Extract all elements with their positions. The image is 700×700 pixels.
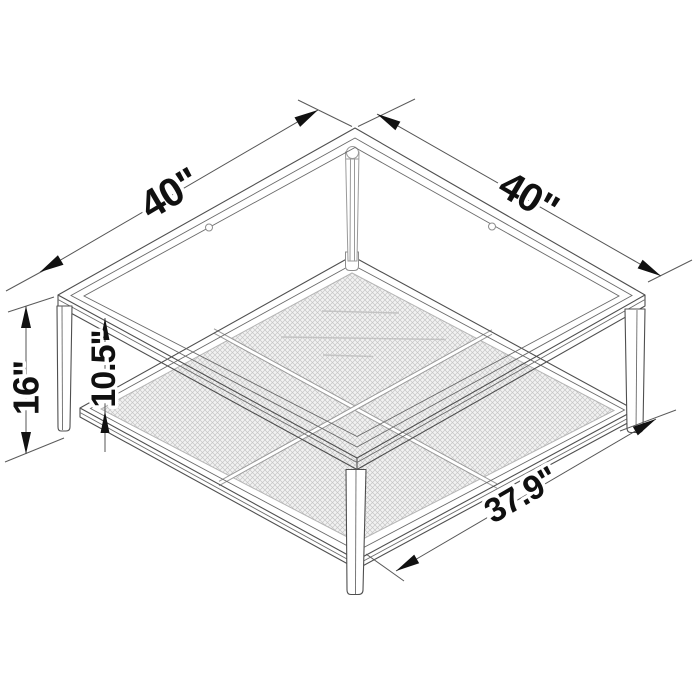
arrowhead-icon (21, 432, 31, 454)
dimension-top-right: 40" (358, 99, 692, 282)
dimension-shelf-clearance: 10.5" (85, 318, 123, 452)
dimension-diagram: 40" 40" 16" 10.5" 37.9" (0, 0, 700, 700)
dim-label-shelf-clearance: 10.5" (85, 330, 123, 407)
left-leg (57, 306, 72, 431)
dimension-height: 16" (5, 297, 64, 462)
left-leg-edge (62, 306, 63, 430)
arrowhead-icon (40, 255, 64, 272)
arrowhead-icon (21, 306, 31, 328)
dim-label-top-right: 40" (491, 163, 565, 232)
arrowhead-icon (377, 114, 400, 130)
frame-tab-icon (489, 223, 496, 230)
arrowhead-icon (396, 555, 419, 571)
frame-tab-icon (206, 224, 213, 231)
dim-label-height: 16" (6, 361, 47, 415)
front-leg-edge (356, 470, 357, 594)
dimension-top-left: 40" (6, 100, 352, 291)
right-leg (625, 309, 645, 433)
arrowhead-icon (638, 260, 661, 276)
back-leg (346, 147, 360, 262)
arrowhead-icon (295, 110, 319, 127)
coffee-table-line-drawing: 40" 40" 16" 10.5" 37.9" (0, 0, 700, 700)
